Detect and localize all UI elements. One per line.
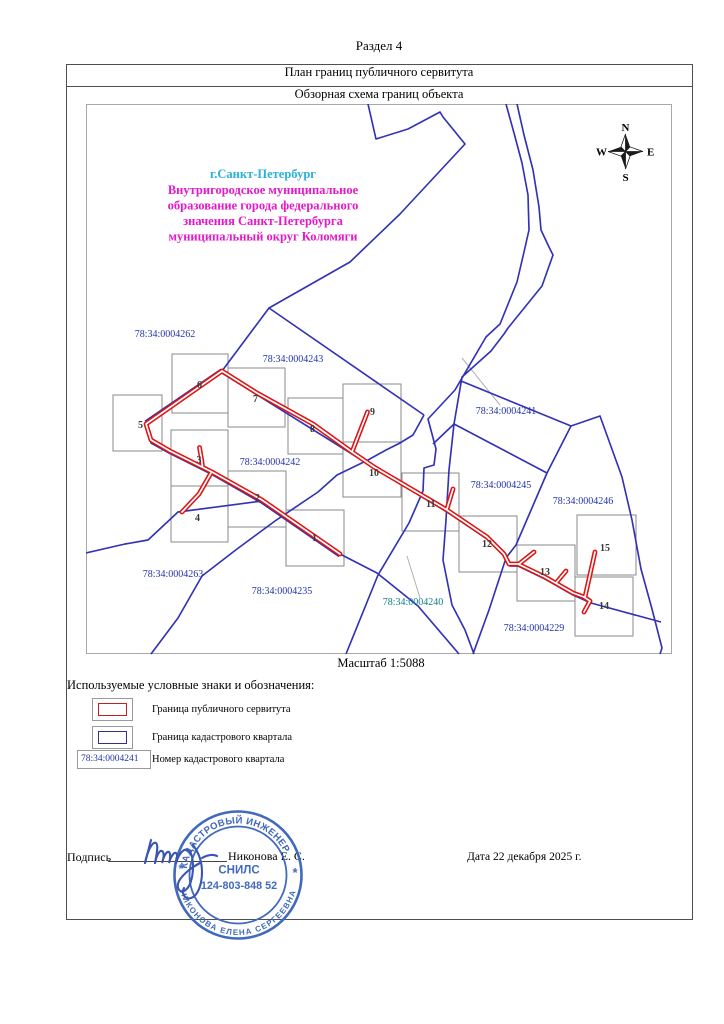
- svg-text:78:34:0004246: 78:34:0004246: [553, 496, 614, 507]
- svg-text:7: 7: [253, 394, 258, 405]
- svg-text:г.Санкт-Петербург: г.Санкт-Петербург: [210, 167, 316, 181]
- svg-text:78:34:0004241: 78:34:0004241: [476, 406, 537, 417]
- svg-text:1: 1: [312, 533, 317, 544]
- svg-text:8: 8: [310, 424, 315, 435]
- svg-text:значения Санкт-Петербурга: значения Санкт-Петербурга: [183, 214, 343, 228]
- svg-text:Внутригородское муниципальное: Внутригородское муниципальное: [168, 183, 359, 197]
- svg-text:13: 13: [540, 567, 550, 578]
- svg-text:12: 12: [482, 539, 492, 550]
- svg-text:78:34:0004229: 78:34:0004229: [504, 623, 565, 634]
- svg-text:муниципальный округ Коломяги: муниципальный округ Коломяги: [168, 230, 357, 244]
- svg-text:E: E: [647, 147, 654, 159]
- svg-text:78:34:0004245: 78:34:0004245: [471, 480, 532, 491]
- svg-text:78:34:0004240: 78:34:0004240: [383, 597, 444, 608]
- svg-text:2: 2: [255, 493, 260, 504]
- svg-text:78:34:0004263: 78:34:0004263: [143, 569, 204, 580]
- svg-text:78:34:0004262: 78:34:0004262: [135, 329, 196, 340]
- svg-text:W: W: [596, 147, 607, 159]
- svg-text:124-803-848 52: 124-803-848 52: [200, 880, 276, 892]
- svg-text:6: 6: [197, 380, 202, 391]
- svg-text:*: *: [292, 865, 298, 880]
- svg-text:15: 15: [600, 543, 610, 554]
- svg-text:образование города федеральног: образование города федерального: [168, 199, 359, 213]
- svg-text:5: 5: [138, 420, 143, 431]
- svg-text:4: 4: [195, 513, 200, 524]
- svg-text:S: S: [622, 172, 628, 184]
- svg-text:3: 3: [197, 455, 202, 466]
- svg-text:N: N: [622, 122, 630, 134]
- svg-text:СНИЛС: СНИЛС: [218, 865, 259, 877]
- svg-text:78:34:0004242: 78:34:0004242: [240, 457, 301, 468]
- svg-text:14: 14: [599, 601, 609, 612]
- svg-text:78:34:0004243: 78:34:0004243: [263, 354, 324, 365]
- svg-text:78:34:0004235: 78:34:0004235: [252, 586, 313, 597]
- svg-text:10: 10: [369, 468, 379, 479]
- svg-text:9: 9: [370, 407, 375, 418]
- svg-text:11: 11: [426, 499, 435, 510]
